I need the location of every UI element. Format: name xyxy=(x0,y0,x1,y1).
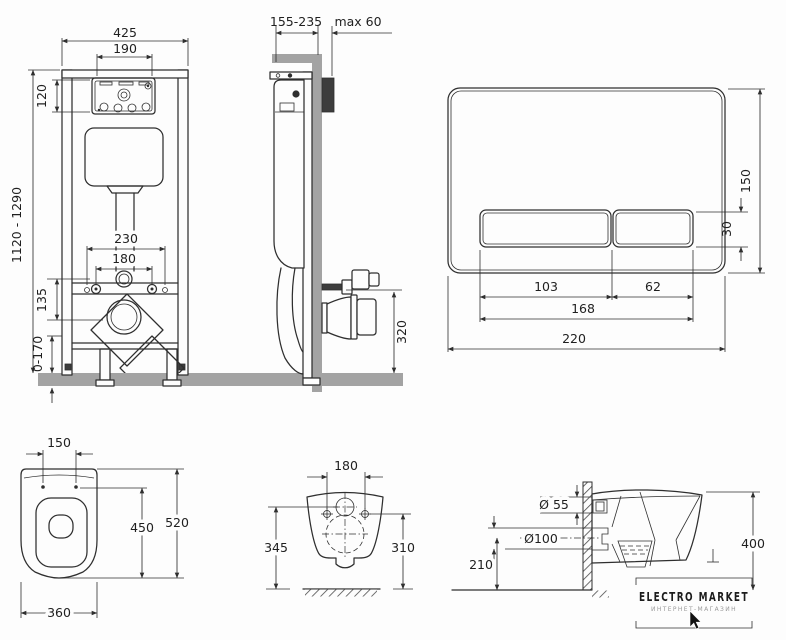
dim-bowl-length: 520 xyxy=(165,515,189,530)
electro-market-logo: ELECTRO MARKET ИНТЕРНЕТ-МАГАЗИН xyxy=(636,578,752,629)
flush-button-large xyxy=(480,210,611,247)
bowl-outline xyxy=(21,469,97,578)
dim-inlet-diameter: Ø 55 xyxy=(539,497,569,512)
dim-feet-range: 0-170 xyxy=(30,336,45,372)
wall-bar xyxy=(312,63,322,392)
dim-holes-height: 310 xyxy=(391,540,415,555)
dim-panel-width: 190 xyxy=(113,41,137,56)
access-panel xyxy=(92,78,155,114)
drain-outlet xyxy=(107,300,141,334)
frame-side-view: 155-235 max 60 320 xyxy=(270,14,409,392)
flush-plate-view: 150 30 103 62 168 220 xyxy=(448,88,765,352)
dim-panel-height: 120 xyxy=(34,84,49,108)
dim-stud-spacing: 180 xyxy=(112,251,136,266)
cistern-front xyxy=(85,128,163,186)
dim-bowl-inner-length: 450 xyxy=(130,520,154,535)
dim-back-holes: 180 xyxy=(334,458,358,473)
dim-button-height: 30 xyxy=(719,221,734,237)
dim-outlet-axis-height: 210 xyxy=(469,557,493,572)
dim-hinge-spacing: 150 xyxy=(47,435,71,450)
cistern-side xyxy=(274,80,304,268)
dim-bowl-width: 360 xyxy=(47,605,71,620)
technical-drawing-page: 425 190 120 1120 - 1290 230 180 135 0-17… xyxy=(0,0,786,640)
flush-button-small xyxy=(613,210,693,247)
dim-button-large-width: 103 xyxy=(534,279,558,294)
wall-hatch xyxy=(583,482,592,590)
bowl-back-view: 180 345 310 xyxy=(264,458,415,597)
dim-outlet-height: 320 xyxy=(394,320,409,344)
installation-drawing: 425 190 120 1120 - 1290 230 180 135 0-17… xyxy=(0,0,786,640)
dim-drain-offset: 135 xyxy=(34,288,49,312)
dim-plate-width: 220 xyxy=(562,331,586,346)
dim-frame-depth: 155-235 xyxy=(270,14,322,29)
logo-subtitle: ИНТЕРНЕТ-МАГАЗИН xyxy=(651,605,737,613)
dim-buttons-width: 168 xyxy=(571,301,595,316)
floor-bar xyxy=(38,373,403,386)
dim-frame-height: 1120 - 1290 xyxy=(9,187,24,263)
dim-inlet-height: 345 xyxy=(264,540,288,555)
logo-title: ELECTRO MARKET xyxy=(639,589,749,604)
dim-bowl-side-height: 400 xyxy=(741,536,765,551)
ceiling-bar xyxy=(272,54,322,63)
dim-plate-height: 150 xyxy=(738,169,753,193)
flush-plate xyxy=(448,88,725,273)
dim-anchor-spacing: 230 xyxy=(114,231,138,246)
bowl-top-view: 150 450 520 360 xyxy=(21,435,189,620)
bowl-side-outline xyxy=(592,490,702,563)
dim-button-small-width: 62 xyxy=(645,279,661,294)
cursor-icon xyxy=(690,611,701,629)
dim-frame-width: 425 xyxy=(113,25,137,40)
dim-outlet-diameter: Ø100 xyxy=(524,531,558,546)
frame-front-view: 425 190 120 1120 - 1290 230 180 135 0-17… xyxy=(9,25,188,403)
mounting-box xyxy=(322,78,334,112)
bowl-side-view: Ø 55 Ø100 210 400 xyxy=(452,482,765,598)
water-supply xyxy=(116,271,132,287)
dim-max-wall: max 60 xyxy=(334,14,381,29)
